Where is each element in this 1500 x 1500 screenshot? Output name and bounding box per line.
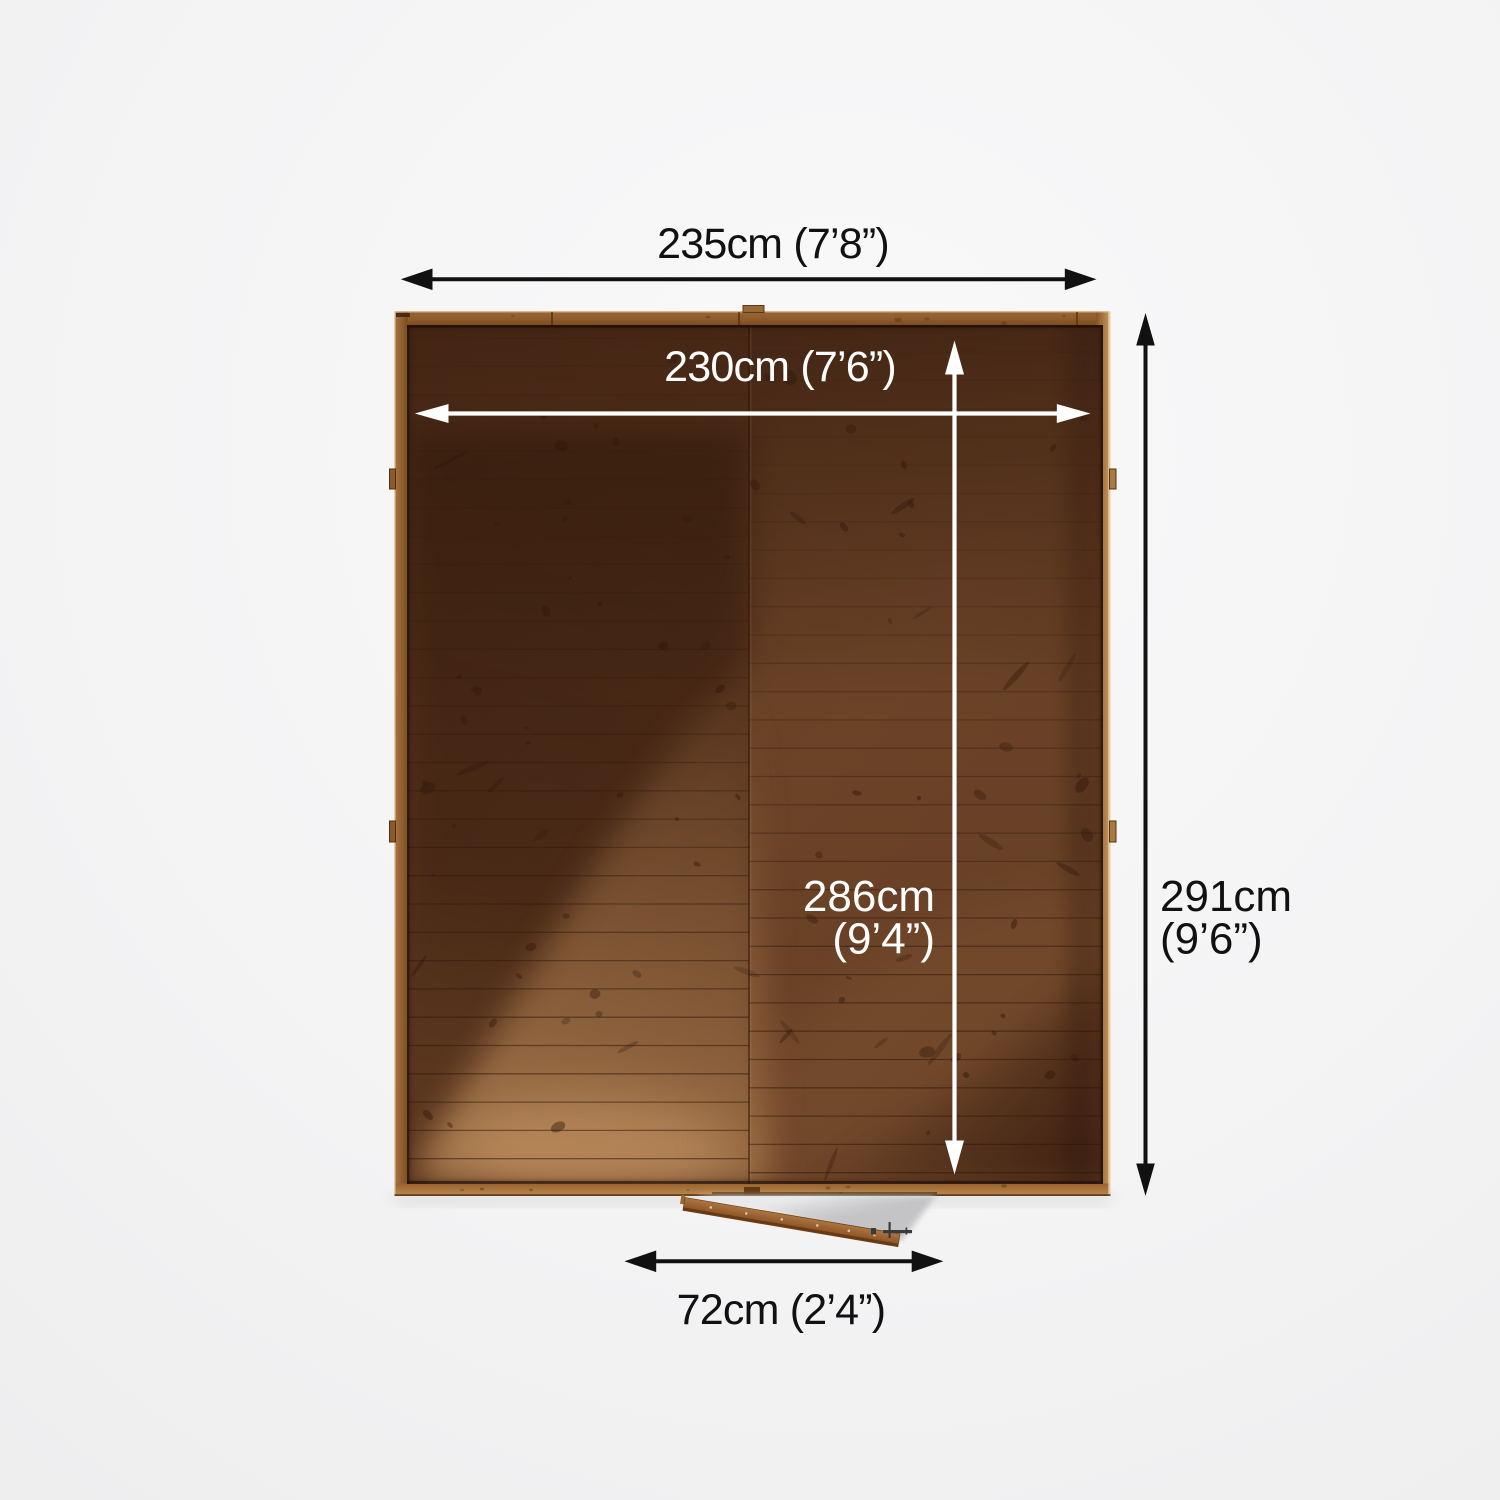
- svg-text:72cm (2’4”): 72cm (2’4”): [677, 1286, 886, 1334]
- svg-text:(9’6”): (9’6”): [1160, 915, 1263, 964]
- svg-text:(9’4”): (9’4”): [832, 915, 935, 964]
- svg-text:230cm (7’6”): 230cm (7’6”): [664, 343, 896, 391]
- svg-text:235cm (7’8”): 235cm (7’8”): [657, 220, 889, 268]
